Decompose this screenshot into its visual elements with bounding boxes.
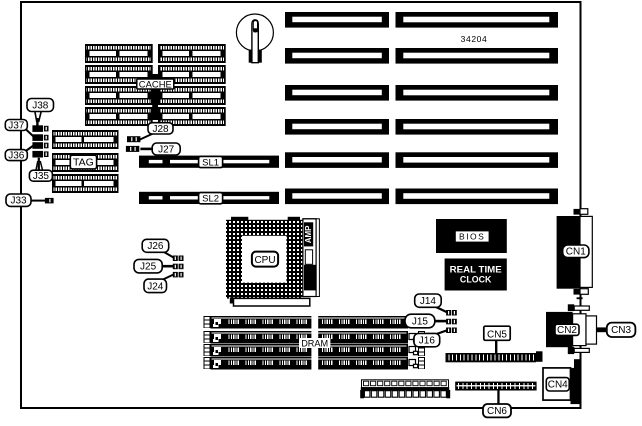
svg-text:CN4: CN4: [548, 380, 568, 391]
svg-text:J27: J27: [158, 144, 175, 155]
svg-text:34204: 34204: [461, 34, 488, 44]
svg-text:J37: J37: [8, 120, 25, 131]
svg-text:DRAM: DRAM: [301, 338, 328, 349]
svg-text:CN3: CN3: [611, 325, 631, 336]
svg-text:J26: J26: [147, 241, 164, 252]
svg-text:BIOS: BIOS: [459, 232, 485, 242]
svg-text:REAL TIME: REAL TIME: [450, 264, 502, 274]
svg-text:J15: J15: [412, 316, 429, 327]
svg-text:J35: J35: [33, 171, 50, 182]
svg-text:CLOCK: CLOCK: [460, 274, 492, 284]
svg-text:CN1: CN1: [566, 247, 586, 258]
svg-text:TAG: TAG: [73, 157, 94, 169]
svg-text:CN6: CN6: [487, 406, 507, 417]
svg-text:SL1: SL1: [202, 157, 219, 168]
svg-text:CACHE: CACHE: [139, 79, 172, 90]
svg-text:J25: J25: [140, 262, 157, 273]
svg-text:CPU: CPU: [254, 255, 275, 266]
svg-text:J24: J24: [147, 281, 164, 292]
svg-text:AMP: AMP: [304, 225, 313, 243]
svg-text:J36: J36: [8, 151, 25, 162]
svg-text:J28: J28: [152, 124, 169, 135]
svg-text:CN2: CN2: [557, 325, 577, 336]
svg-text:J16: J16: [419, 336, 436, 347]
svg-text:J38: J38: [32, 100, 49, 111]
svg-text:CN5: CN5: [487, 329, 507, 340]
svg-text:SL2: SL2: [202, 194, 219, 205]
svg-text:J14: J14: [420, 296, 437, 307]
svg-text:J33: J33: [10, 196, 27, 207]
